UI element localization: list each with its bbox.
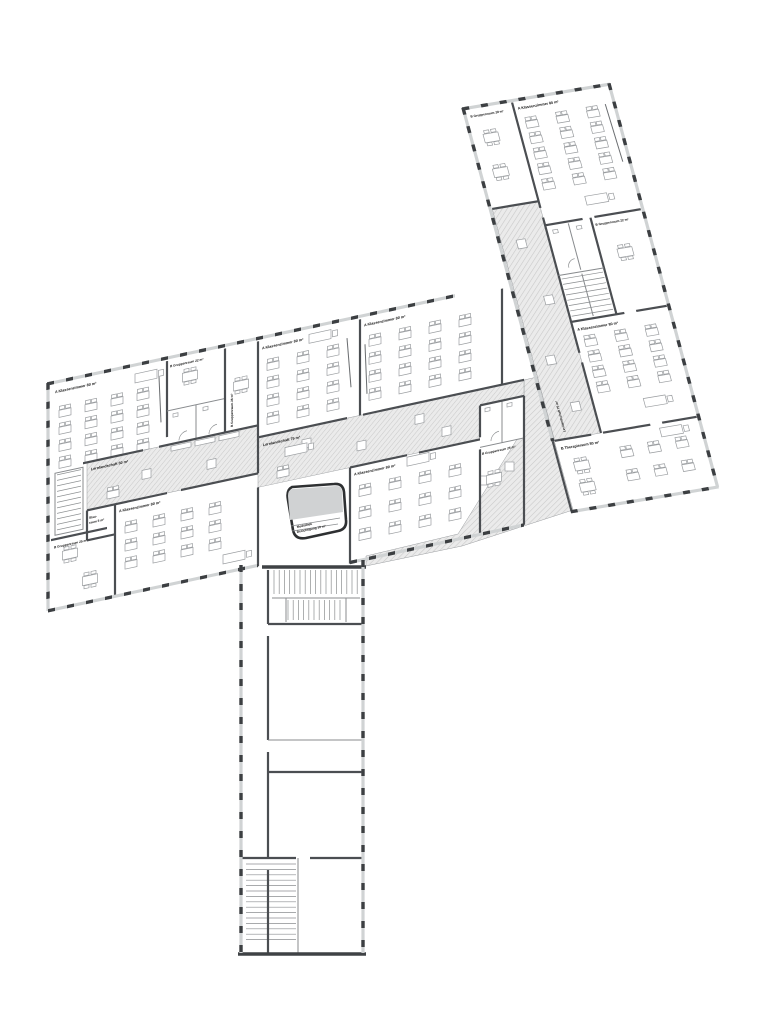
label-right-classroom-2: A Klassenzimmer 80 m² (577, 321, 619, 332)
label-right-therapy: B Therapieraum 80 m² (560, 440, 600, 450)
left-wing-and-center-block: A Klassenzimmer 80 m² B Gruppenraum 22 m… (47, 280, 524, 629)
furniture-left-group-25-a (63, 544, 78, 563)
label-center-classroom-2: A Klassenzimmer 80 m² (364, 314, 406, 327)
furniture-left-group-26 (234, 375, 249, 394)
furniture-left-classroom-2 (125, 501, 221, 569)
bottom-wing (238, 560, 366, 954)
floor-plan-page: A Klassenzimmer 80 m² B Gruppenraum 22 m… (0, 0, 768, 1024)
furniture-right-classroom-2 (583, 324, 671, 393)
furniture-right-therapy-table-2 (578, 478, 597, 496)
furniture-right-therapy (619, 436, 695, 481)
furniture-center-classroom-2 (369, 313, 471, 400)
left-wing-stair (55, 467, 83, 535)
furniture-right-group-28-a (482, 128, 501, 146)
furniture-right-group-22 (616, 243, 635, 261)
walls-bottom-wing (238, 567, 366, 954)
right-wc-fixtures (552, 221, 593, 272)
furniture-center-classroom-3 (359, 463, 461, 540)
window-walls-bottom-wing (241, 560, 363, 953)
mediathek-void: Mediathek Besichtigung 10 m² (288, 484, 347, 538)
bottom-wing-lower-stair (246, 860, 298, 950)
label-left-classroom-1: A Klassenzimmer 80 m² (55, 381, 97, 394)
label-right-group-28: B Gruppenraum 28 m² (470, 109, 504, 118)
furniture-right-classroom-1 (524, 105, 616, 190)
bottom-wing-stair (272, 570, 360, 622)
furniture-left-group-25-b (83, 570, 98, 589)
label-center-classroom-1: A Klassenzimmer 80 m² (262, 337, 304, 350)
furniture-right-group-28-b (491, 163, 510, 181)
label-left-group-26: B Gruppenraum 26 m² (230, 393, 234, 427)
label-right-classroom-1: A Klassenzimmer 80 m² (517, 100, 559, 111)
floor-plan-canvas: A Klassenzimmer 80 m² B Gruppenraum 22 m… (0, 0, 768, 1024)
furniture-left-group-22 (183, 366, 198, 385)
furniture-center-classroom-1 (267, 344, 339, 425)
furniture-right-therapy-table (572, 456, 591, 474)
label-right-group-22: B Gruppenraum 22 m² (595, 217, 629, 226)
label-left-group-22: B Gruppenraum 22 m² (170, 357, 203, 368)
